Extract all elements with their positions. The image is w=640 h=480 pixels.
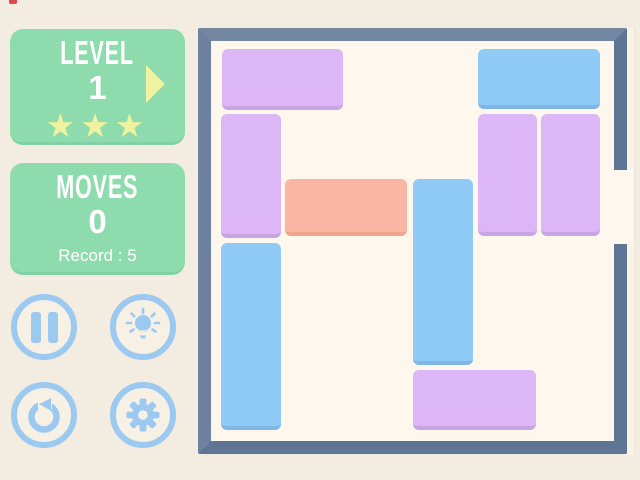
moves-value: 0 [10, 205, 185, 239]
level-title: LEVEL [10, 38, 185, 68]
star-icon: ★ [115, 107, 150, 144]
key-block[interactable] [285, 179, 407, 236]
hint-button[interactable] [110, 294, 176, 360]
restart-button[interactable] [11, 382, 77, 448]
settings-button[interactable] [110, 382, 176, 448]
puzzle-block-blue[interactable] [478, 49, 600, 109]
exit-gap [612, 170, 634, 244]
record-label: Record : 5 [10, 246, 185, 266]
puzzle-block-purple[interactable] [222, 49, 343, 110]
puzzle-block-purple[interactable] [478, 114, 537, 236]
pause-button[interactable] [11, 294, 77, 360]
moves-title: MOVES [10, 172, 185, 202]
stage: LEVEL 1 ★★★ MOVES 0 Record : 5 [0, 0, 640, 480]
moves-panel: MOVES 0 Record : 5 [10, 163, 185, 275]
restart-icon [24, 395, 64, 435]
lightbulb-icon [122, 306, 164, 348]
level-panel: LEVEL 1 ★★★ [10, 29, 185, 145]
puzzle-block-blue[interactable] [221, 243, 281, 430]
puzzle-block-blue[interactable] [413, 179, 473, 365]
puzzle-block-purple[interactable] [541, 114, 600, 236]
star-icon: ★ [46, 107, 81, 144]
stars: ★★★ [10, 109, 185, 143]
next-level-arrow-icon [146, 65, 165, 103]
pause-icon [31, 312, 58, 343]
red-notch [9, 0, 17, 4]
puzzle-block-purple[interactable] [413, 370, 536, 430]
puzzle-block-purple[interactable] [221, 114, 281, 238]
gear-icon [123, 395, 163, 435]
star-icon: ★ [80, 107, 115, 144]
